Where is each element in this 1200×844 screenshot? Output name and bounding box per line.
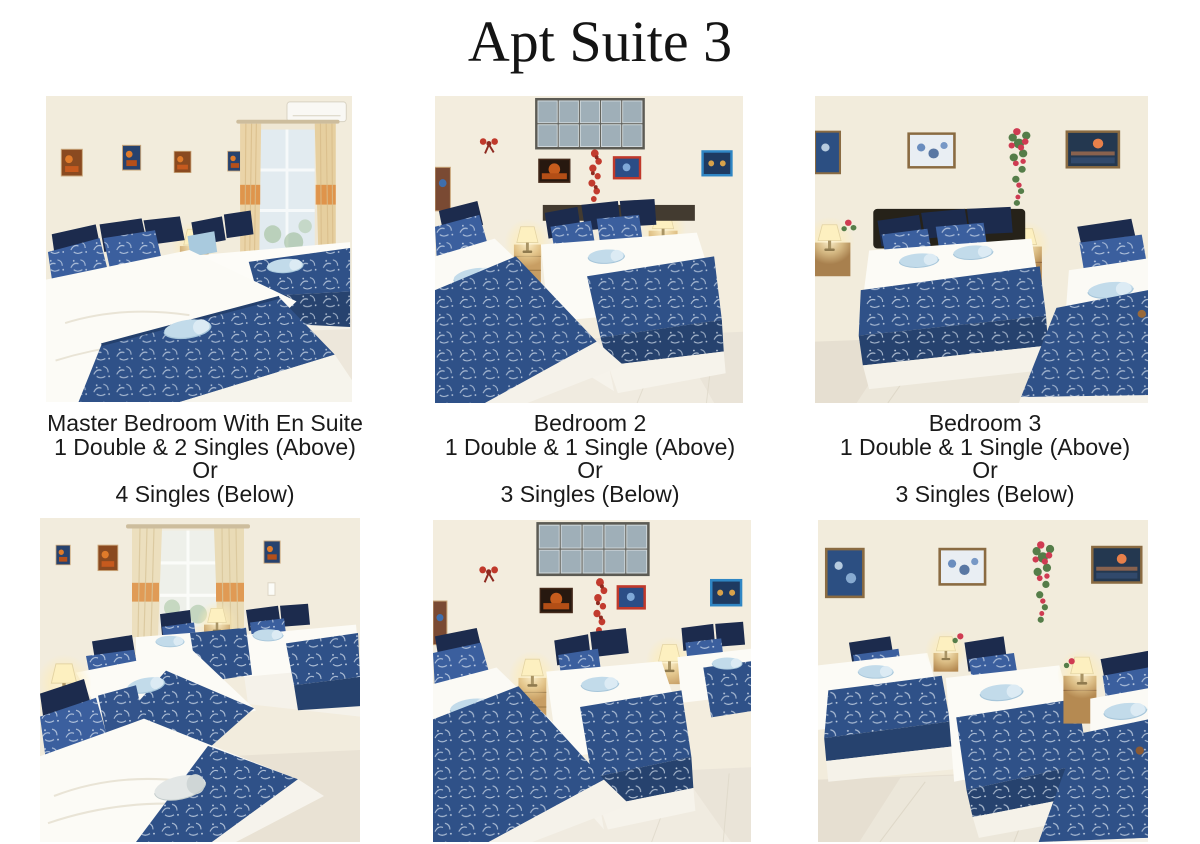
door-knob <box>1136 746 1144 754</box>
glass-block-window <box>536 522 649 576</box>
caption-line: Bedroom 3 <box>800 412 1170 436</box>
door-knob <box>1138 310 1146 318</box>
caption-line: 3 Singles (Below) <box>800 483 1170 507</box>
caption-bedroom-3: Bedroom 3 1 Double & 1 Single (Above) Or… <box>800 412 1170 506</box>
curtained-window <box>236 120 339 258</box>
photo-bedroom-3-above <box>815 96 1148 403</box>
photo-bedroom-3-below <box>818 520 1148 842</box>
caption-line: Master Bedroom With En Suite <box>20 412 390 436</box>
caption-line: Bedroom 2 <box>420 412 760 436</box>
ac-unit <box>287 102 346 122</box>
caption-line: 1 Double & 1 Single (Above) <box>420 436 760 460</box>
caption-line: Or <box>20 459 390 483</box>
caption-line: 1 Double & 2 Singles (Above) <box>20 436 390 460</box>
photo-master-bedroom-below <box>40 518 360 842</box>
page-title: Apt Suite 3 <box>0 8 1200 75</box>
caption-line: 1 Double & 1 Single (Above) <box>800 436 1170 460</box>
caption-bedroom-2: Bedroom 2 1 Double & 1 Single (Above) Or… <box>420 412 760 506</box>
lamp <box>1057 649 1107 699</box>
glass-block-window <box>535 98 645 149</box>
caption-line: Or <box>420 459 760 483</box>
photo-bedroom-2-above <box>435 96 743 403</box>
caption-line: 3 Singles (Below) <box>420 483 760 507</box>
caption-master-bedroom: Master Bedroom With En Suite 1 Double & … <box>20 412 390 506</box>
caption-line: 4 Singles (Below) <box>20 483 390 507</box>
collage-page: Apt Suite 3 <box>0 0 1200 844</box>
photo-bedroom-2-below <box>433 520 751 842</box>
caption-line: Or <box>800 459 1170 483</box>
double-bed-left <box>859 207 1050 389</box>
photo-master-bedroom-above <box>46 96 352 402</box>
